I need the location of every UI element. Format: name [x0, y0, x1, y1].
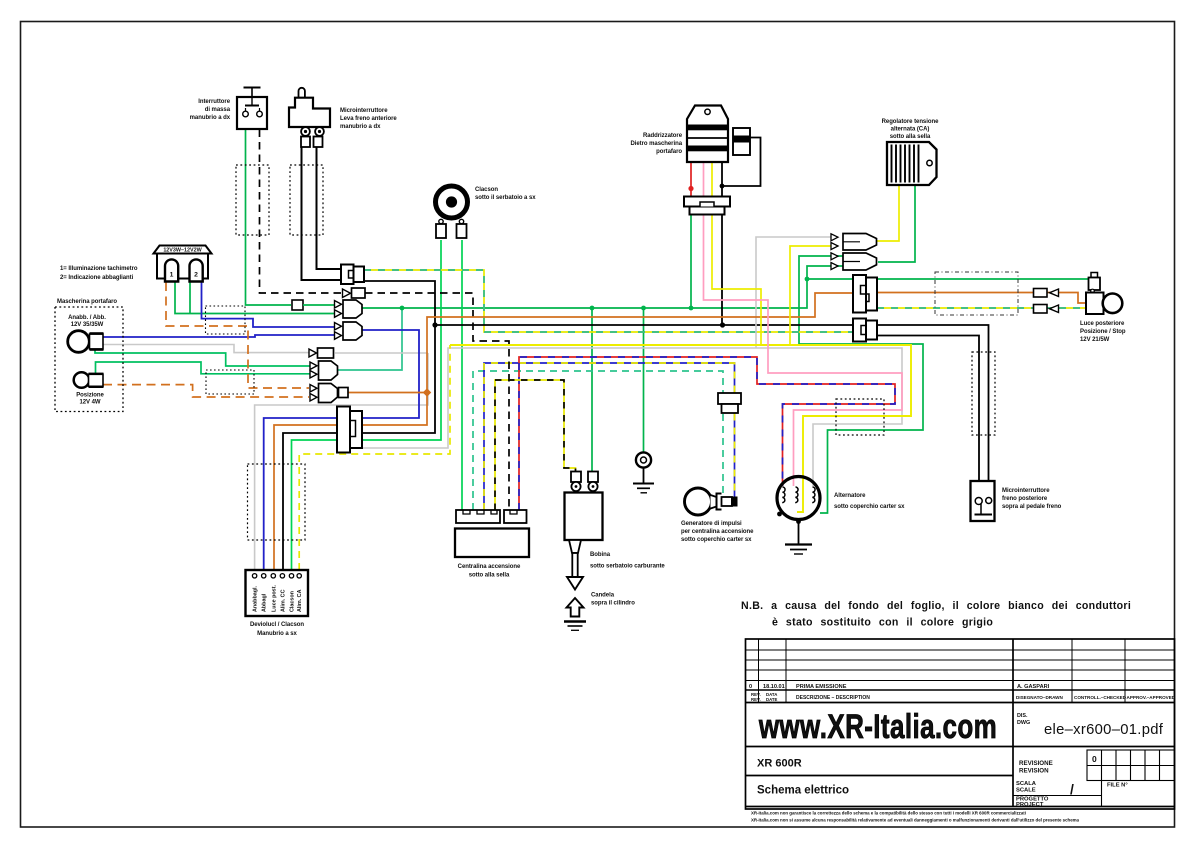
- svg-text:Deviolucl / Clacson: Deviolucl / Clacson: [250, 622, 304, 628]
- svg-text:sotto alla sella: sotto alla sella: [469, 573, 510, 579]
- svg-text:Luce post.: Luce post.: [271, 585, 277, 612]
- svg-text:FILE N°: FILE N°: [1107, 783, 1128, 789]
- svg-text:freno posteriore: freno posteriore: [1002, 496, 1048, 502]
- svg-text:Bobina: Bobina: [590, 552, 611, 558]
- svg-text:/: /: [1070, 781, 1074, 797]
- svg-text:portafaro: portafaro: [656, 149, 682, 155]
- svg-text:alternata (CA): alternata (CA): [891, 127, 930, 133]
- svg-text:Manubrio a sx: Manubrio a sx: [257, 631, 297, 637]
- svg-text:Posizione: Posizione: [76, 393, 104, 399]
- svg-text:sopra al pedale freno: sopra al pedale freno: [1002, 504, 1062, 510]
- svg-text:Candela: Candela: [591, 593, 615, 599]
- svg-text:12V 21/5W: 12V 21/5W: [1080, 337, 1110, 343]
- svg-text:N.B. a causa del fondo del fog: N.B. a causa del fondo del foglio, il co…: [741, 600, 1131, 612]
- svg-text:sotto coperchio carter sx: sotto coperchio carter sx: [834, 504, 905, 510]
- svg-text:SCALE: SCALE: [1016, 788, 1036, 794]
- svg-text:1: 1: [170, 272, 174, 279]
- svg-text:ele–xr600–01.pdf: ele–xr600–01.pdf: [1044, 722, 1164, 738]
- svg-text:DESCRIZIONE – DESCRIPTION: DESCRIZIONE – DESCRIPTION: [796, 695, 870, 701]
- svg-text:DISEGNATO–DRAWN: DISEGNATO–DRAWN: [1016, 695, 1063, 700]
- svg-text:18.10.01: 18.10.01: [763, 684, 785, 690]
- svg-text:Posizione / Stop: Posizione / Stop: [1080, 329, 1126, 335]
- svg-text:REVISION: REVISION: [1019, 768, 1049, 775]
- svg-text:CONTROLL.–CHECKED: CONTROLL.–CHECKED: [1074, 695, 1127, 700]
- svg-text:2: 2: [194, 272, 198, 279]
- svg-text:Anabbagl.: Anabbagl.: [253, 585, 259, 612]
- svg-text:Luce posteriore: Luce posteriore: [1080, 321, 1125, 327]
- svg-text:DIS.: DIS.: [1017, 713, 1028, 719]
- svg-text:SCALA: SCALA: [1016, 781, 1037, 787]
- svg-text:PROJECT: PROJECT: [1016, 802, 1044, 808]
- svg-text:Mascherina portafaro: Mascherina portafaro: [57, 299, 117, 305]
- svg-text:Regolatore tensione: Regolatore tensione: [882, 119, 939, 125]
- svg-text:di massa: di massa: [205, 107, 231, 113]
- svg-text:Alternatore: Alternatore: [834, 493, 866, 499]
- svg-text:A. GASPARI: A. GASPARI: [1017, 684, 1050, 690]
- svg-text:Generatore di impulsi: Generatore di impulsi: [681, 521, 742, 527]
- svg-text:Raddrizzatore: Raddrizzatore: [643, 133, 683, 139]
- svg-text:REV.: REV.: [751, 697, 761, 702]
- svg-text:per centralina accensione: per centralina accensione: [681, 529, 754, 535]
- svg-text:12V 35/35W: 12V 35/35W: [71, 322, 104, 328]
- svg-text:manubrio a dx: manubrio a dx: [340, 124, 381, 130]
- svg-text:Alim. CA: Alim. CA: [297, 589, 303, 612]
- svg-text:XR-Italia.com non garantisce l: XR-Italia.com non garantisce la corrette…: [751, 811, 1026, 816]
- svg-text:sotto alla sella: sotto alla sella: [890, 134, 931, 140]
- svg-text:è stato sostituito con il colo: è stato sostituito con il colore grigio: [772, 617, 993, 629]
- svg-text:Microinterruttore: Microinterruttore: [340, 108, 388, 114]
- svg-text:Abbagl: Abbagl: [262, 593, 268, 612]
- svg-text:XR 600R: XR 600R: [757, 758, 802, 770]
- svg-text:0: 0: [1092, 754, 1097, 764]
- svg-text:sotto serbatoio carburante: sotto serbatoio carburante: [590, 564, 665, 570]
- svg-text:Microinterruttore: Microinterruttore: [1002, 488, 1050, 494]
- svg-text:12V3W–12V2W: 12V3W–12V2W: [163, 248, 202, 254]
- svg-text:Clacson: Clacson: [290, 591, 296, 612]
- svg-text:Anabb. / Abb.: Anabb. / Abb.: [68, 315, 106, 321]
- svg-text:DWG: DWG: [1017, 720, 1030, 726]
- svg-text:sotto il serbatoio a sx: sotto il serbatoio a sx: [475, 195, 536, 201]
- svg-text:Leva freno anteriore: Leva freno anteriore: [340, 116, 397, 122]
- svg-text:REVISIONE: REVISIONE: [1019, 760, 1053, 767]
- svg-text:sopra il cilindro: sopra il cilindro: [591, 601, 635, 607]
- svg-text:0: 0: [749, 684, 752, 690]
- svg-text:Dietro mascherina: Dietro mascherina: [630, 141, 682, 147]
- svg-text:XR-Italia.com non si assume al: XR-Italia.com non si assume alcuna respo…: [751, 818, 1080, 823]
- svg-text:1= Illuminazione tachimetro: 1= Illuminazione tachimetro: [60, 266, 138, 272]
- svg-text:12V 4W: 12V 4W: [79, 400, 100, 406]
- svg-text:Schema elettrico: Schema elettrico: [757, 785, 849, 797]
- svg-text:Alim. CC: Alim. CC: [280, 589, 286, 612]
- svg-text:manubrio a dx: manubrio a dx: [190, 115, 231, 121]
- svg-text:Clacson: Clacson: [475, 187, 498, 193]
- svg-text:2= Indicazione abbaglianti: 2= Indicazione abbaglianti: [60, 275, 134, 281]
- svg-text:Centralina accensione: Centralina accensione: [458, 564, 521, 570]
- svg-text:www.XR-Italia.com: www.XR-Italia.com: [758, 708, 997, 746]
- svg-text:Interruttore: Interruttore: [198, 99, 230, 105]
- svg-text:PRIMA EMISSIONE: PRIMA EMISSIONE: [796, 684, 847, 690]
- svg-text:DATE: DATE: [766, 697, 778, 702]
- svg-text:sotto coperchio carter sx: sotto coperchio carter sx: [681, 537, 752, 543]
- svg-text:APPROV.–APPROVED: APPROV.–APPROVED: [1127, 695, 1176, 700]
